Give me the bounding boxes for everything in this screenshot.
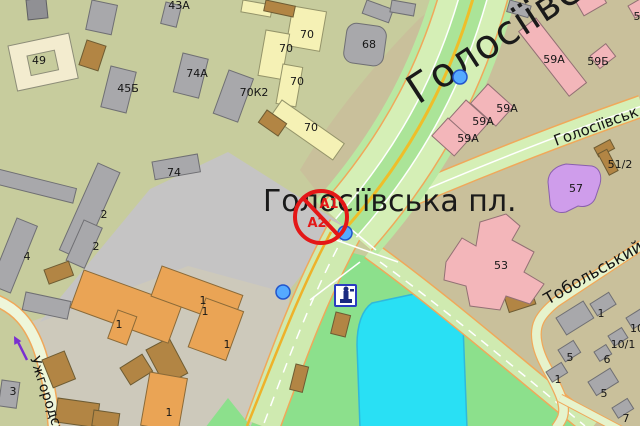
building-label: 1 [598,307,605,320]
building-label: 59А [543,53,565,66]
building-label: 57 [569,182,583,195]
building-label: 59А [457,132,479,145]
building-label: 5 [634,10,640,23]
poi-marker-icon[interactable] [276,285,290,299]
building-label: 70 [300,28,314,41]
building-label: 1 [555,373,562,386]
building-label: 70 [279,42,293,55]
restriction-label-a2: А2 [307,216,326,231]
building-label: 10 [630,322,640,335]
building-label: 59А [496,102,518,115]
building-label: 2 [93,240,100,253]
monument-icon[interactable] [335,285,356,306]
building-label: 70 [304,121,318,134]
building-label: 74А [186,67,208,80]
building-label: 5 [601,387,608,400]
building-label: 1 [116,318,123,331]
building-label: 70К2 [240,86,269,99]
building-label: 7 [623,412,630,425]
building-label: 6 [604,353,611,366]
building-label: 10/1 [611,338,636,351]
building-label: 45Б [117,82,139,95]
building-label: 1 [224,338,231,351]
building-label: 53 [494,259,508,272]
building-label: 43А [168,0,190,12]
building-label: 3 [10,385,17,398]
poi-marker-icon[interactable] [453,70,467,84]
building-label: 1 [202,305,209,318]
map-viewport[interactable]: 49 45Б 74А 43А 70 70 70 70 70К2 68 74 2 … [0,0,640,426]
building-label: 74 [167,166,181,179]
building-label: 59А [472,115,494,128]
restriction-label-a1: А1 [319,197,338,212]
building [86,0,118,35]
building-label: 70 [290,75,304,88]
building-label: 2 [101,208,108,221]
building-label: 49 [32,54,46,67]
building [26,0,48,20]
building-label: 4 [24,250,31,263]
building-label: 59Б [587,55,609,68]
map-canvas[interactable]: 49 45Б 74А 43А 70 70 70 70 70К2 68 74 2 … [0,0,640,426]
building-label: 5 [567,351,574,364]
building-label: 51/2 [608,158,633,171]
building-label: 68 [362,38,376,51]
building-label: 1 [166,406,173,419]
